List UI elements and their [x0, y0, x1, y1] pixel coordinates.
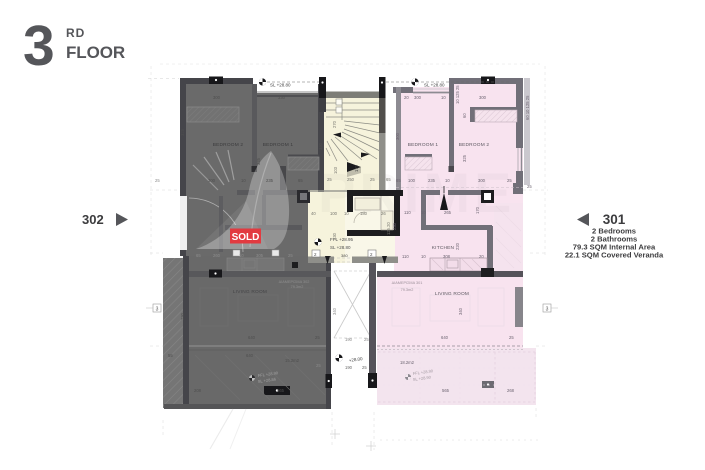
svg-text:BEDROOM 2: BEDROOM 2: [213, 142, 244, 148]
svg-text:302: 302: [82, 212, 104, 227]
svg-text:3: 3: [23, 14, 55, 78]
svg-text:110: 110: [402, 254, 409, 259]
svg-text:BEDROOM 1: BEDROOM 1: [263, 142, 294, 148]
svg-text:330: 330: [332, 232, 337, 240]
svg-text:330: 330: [318, 142, 323, 150]
svg-text:10: 10: [344, 211, 349, 216]
svg-text:100: 100: [408, 178, 416, 183]
svg-text:565: 565: [442, 388, 450, 393]
svg-text:79.3m2: 79.3m2: [291, 285, 304, 289]
svg-text:125.20: 125.20: [386, 222, 391, 235]
svg-text:230: 230: [392, 222, 397, 230]
svg-text:15.2m2: 15.2m2: [285, 358, 300, 363]
svg-text:10: 10: [239, 253, 244, 258]
svg-text:LIVING ROOM: LIVING ROOM: [435, 291, 469, 297]
svg-text:250: 250: [347, 177, 355, 182]
svg-text:308: 308: [443, 254, 451, 259]
svg-text:ΔΙΑΜΕΡΙΣΜΑ 302: ΔΙΑΜΕΡΙΣΜΑ 302: [279, 280, 310, 284]
svg-text:FLOOR: FLOOR: [66, 43, 125, 62]
svg-text:235: 235: [428, 178, 436, 183]
svg-text:25: 25: [155, 178, 160, 183]
svg-text:65: 65: [396, 178, 401, 183]
svg-text:KITCHEN: KITCHEN: [432, 245, 455, 251]
svg-text:190: 190: [345, 365, 353, 370]
svg-text:RD: RD: [66, 26, 85, 40]
svg-text:25: 25: [509, 335, 514, 340]
svg-text:25: 25: [362, 365, 367, 370]
svg-text:640: 640: [246, 353, 254, 358]
svg-text:79.3m2: 79.3m2: [401, 288, 414, 292]
svg-text:260: 260: [213, 253, 221, 258]
svg-text:25: 25: [370, 177, 375, 182]
svg-text:300: 300: [414, 95, 422, 100]
svg-text:18.2m2: 18.2m2: [400, 360, 415, 365]
svg-text:103: 103: [333, 166, 338, 174]
svg-text:180: 180: [360, 211, 368, 216]
svg-text:230: 230: [180, 312, 185, 320]
svg-text:300: 300: [395, 132, 400, 140]
svg-text:55: 55: [168, 353, 173, 358]
svg-text:640: 640: [441, 335, 449, 340]
svg-text:330: 330: [278, 95, 286, 100]
svg-text:170: 170: [475, 206, 480, 214]
svg-text:SL +28.80: SL +28.80: [424, 83, 445, 88]
svg-text:BEDROOM 2: BEDROOM 2: [459, 142, 490, 148]
svg-text:640: 640: [248, 335, 256, 340]
svg-text:65: 65: [386, 177, 391, 182]
svg-text:ΔΙΑΜΕΡΙΣΜΑ 301: ΔΙΑΜΕΡΙΣΜΑ 301: [392, 281, 423, 285]
svg-text:25: 25: [507, 178, 512, 183]
svg-text:25: 25: [364, 337, 369, 342]
svg-text:10: 10: [421, 254, 426, 259]
svg-text:265: 265: [444, 210, 452, 215]
svg-text:LIVING ROOM: LIVING ROOM: [233, 289, 267, 295]
svg-text:100: 100: [330, 211, 338, 216]
svg-text:65: 65: [196, 253, 201, 258]
svg-text:20: 20: [479, 254, 484, 259]
svg-text:268: 268: [507, 388, 515, 393]
svg-text:25: 25: [527, 184, 532, 189]
svg-text:325: 325: [180, 128, 185, 136]
svg-text:300: 300: [213, 95, 221, 100]
svg-text:10: 10: [441, 95, 446, 100]
svg-text:25: 25: [315, 335, 320, 340]
svg-text:300: 300: [479, 95, 487, 100]
svg-text:300: 300: [208, 178, 216, 183]
svg-text:BEDROOM 1: BEDROOM 1: [408, 142, 439, 148]
svg-text:SOLD: SOLD: [232, 232, 260, 243]
svg-text:10: 10: [445, 178, 450, 183]
svg-text:SL +28.80: SL +28.80: [270, 83, 291, 88]
svg-text:60: 60: [462, 113, 467, 118]
svg-text:SL +28.80: SL +28.80: [330, 245, 351, 250]
svg-text:325: 325: [256, 157, 261, 165]
svg-text:325: 325: [462, 154, 467, 162]
svg-text:22.1 SQM Covered Veranda: 22.1 SQM Covered Veranda: [565, 251, 664, 260]
svg-text:25: 25: [288, 253, 293, 258]
svg-text:305: 305: [256, 253, 264, 258]
svg-text:10 125 25: 10 125 25: [455, 85, 460, 104]
svg-text:110: 110: [404, 210, 411, 215]
svg-text:300: 300: [478, 178, 486, 183]
svg-text:170: 170: [354, 164, 359, 172]
svg-text:40: 40: [311, 211, 316, 216]
svg-text:190: 190: [345, 337, 353, 342]
svg-text:301: 301: [603, 212, 626, 227]
svg-text:25: 25: [327, 177, 332, 182]
svg-text:340: 340: [332, 307, 337, 315]
svg-text:235: 235: [266, 178, 274, 183]
svg-text:270: 270: [332, 120, 337, 128]
svg-text:3: 3: [156, 307, 159, 313]
svg-text:3: 3: [546, 307, 549, 313]
svg-text:65: 65: [298, 178, 303, 183]
svg-text:20: 20: [404, 95, 409, 100]
svg-text:26: 26: [381, 211, 386, 216]
svg-text:340: 340: [458, 307, 463, 315]
svg-text:565: 565: [277, 388, 285, 393]
svg-text:25: 25: [316, 363, 321, 368]
svg-text:10: 10: [241, 178, 246, 183]
svg-text:220: 220: [455, 242, 460, 250]
svg-text:208: 208: [194, 388, 202, 393]
svg-text:60 10 125 25: 60 10 125 25: [525, 95, 530, 120]
svg-text:380: 380: [341, 253, 348, 258]
svg-text:10: 10: [421, 210, 426, 215]
